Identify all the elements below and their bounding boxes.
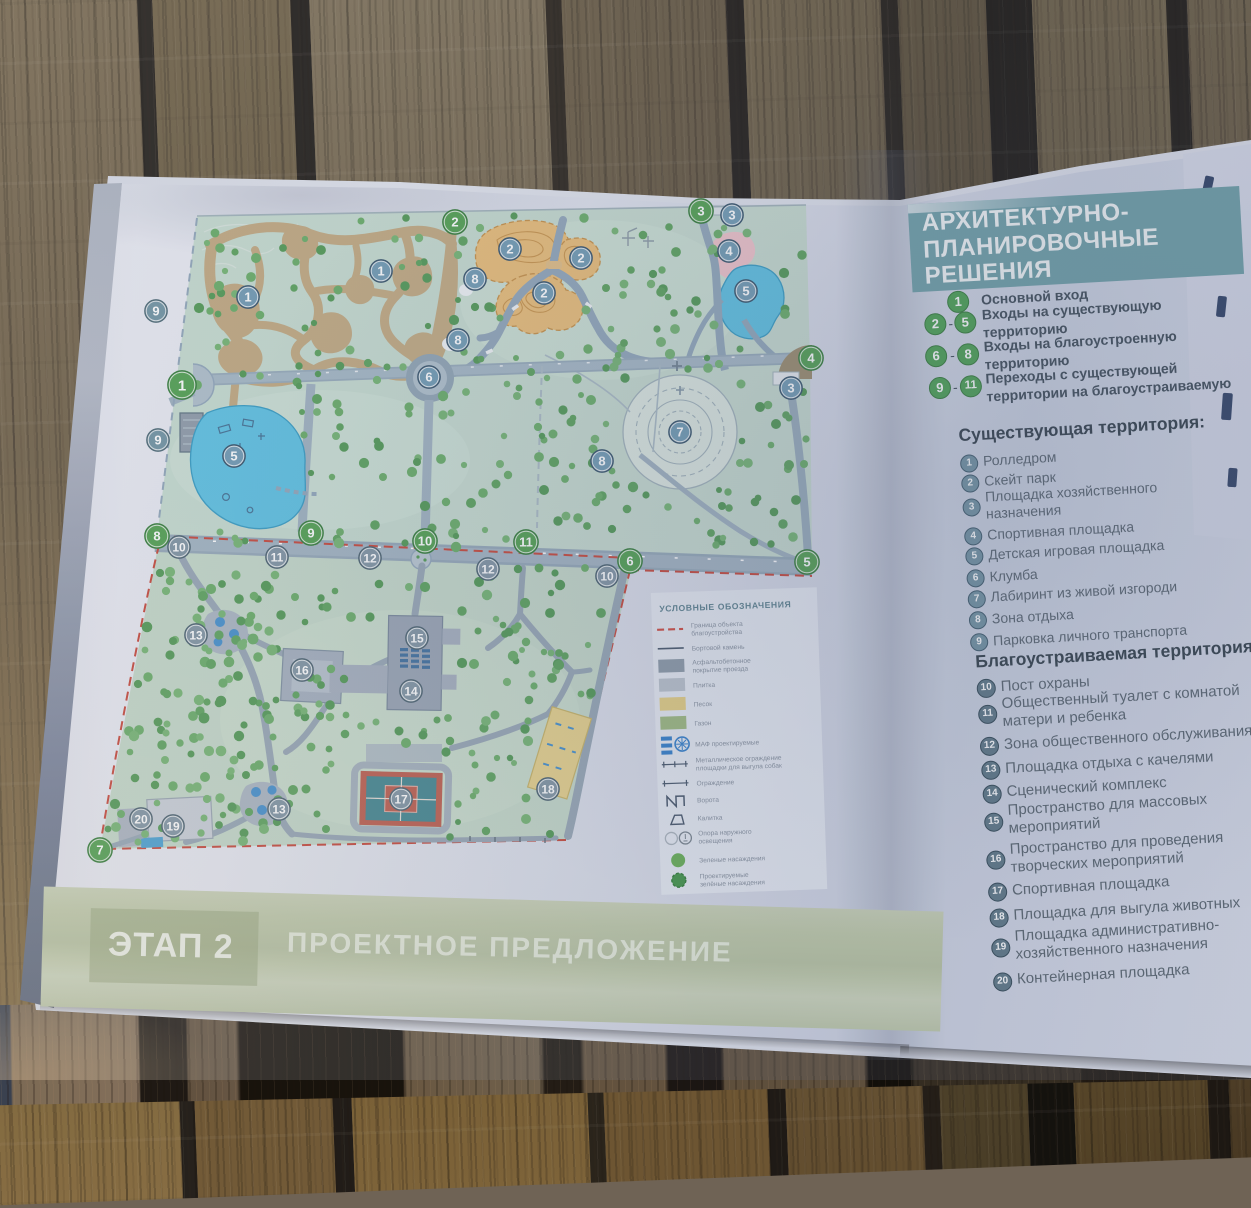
svg-text:Калитка: Калитка xyxy=(698,815,723,823)
svg-text:16: 16 xyxy=(295,663,309,677)
svg-text:3: 3 xyxy=(697,204,704,219)
svg-text:2: 2 xyxy=(506,242,513,257)
svg-text:12: 12 xyxy=(363,551,377,565)
svg-text:7: 7 xyxy=(96,843,103,858)
svg-text:Ограждение: Ограждение xyxy=(696,779,734,787)
svg-text:Газон: Газон xyxy=(694,720,712,728)
svg-text:17: 17 xyxy=(394,792,408,806)
svg-text:1: 1 xyxy=(377,264,384,279)
svg-text:10: 10 xyxy=(418,534,432,549)
svg-text:7: 7 xyxy=(676,425,683,440)
svg-text:Ворота: Ворота xyxy=(697,797,719,805)
svg-text:13: 13 xyxy=(189,628,203,642)
svg-text:2: 2 xyxy=(577,251,584,266)
svg-text:8: 8 xyxy=(454,333,461,348)
svg-text:8: 8 xyxy=(153,529,160,544)
svg-text:20: 20 xyxy=(134,812,148,826)
svg-text:6: 6 xyxy=(425,370,432,385)
svg-text:10: 10 xyxy=(600,569,614,583)
svg-text:5: 5 xyxy=(803,555,810,570)
svg-text:18: 18 xyxy=(541,782,555,796)
svg-text:10: 10 xyxy=(172,540,186,554)
svg-text:11: 11 xyxy=(271,550,284,564)
svg-text:2: 2 xyxy=(451,215,458,230)
svg-text:3: 3 xyxy=(787,381,794,396)
svg-text:5: 5 xyxy=(742,284,749,299)
svg-text:12: 12 xyxy=(481,562,495,576)
svg-text:2: 2 xyxy=(540,286,547,301)
svg-text:9: 9 xyxy=(152,304,159,319)
svg-text:1: 1 xyxy=(244,290,251,305)
svg-text:1: 1 xyxy=(178,377,186,394)
svg-text:Песок: Песок xyxy=(694,701,713,709)
svg-text:8: 8 xyxy=(471,272,478,287)
svg-text:5: 5 xyxy=(230,449,237,464)
svg-text:8: 8 xyxy=(598,454,605,469)
svg-text:4: 4 xyxy=(807,351,815,366)
svg-text:9: 9 xyxy=(307,526,314,541)
svg-text:3: 3 xyxy=(728,208,735,223)
svg-text:13: 13 xyxy=(272,802,286,816)
svg-text:19: 19 xyxy=(166,819,180,833)
svg-text:Плитка: Плитка xyxy=(693,682,716,690)
svg-text:15: 15 xyxy=(410,631,424,645)
svg-text:4: 4 xyxy=(725,244,733,259)
svg-text:14: 14 xyxy=(404,684,418,698)
svg-text:11: 11 xyxy=(519,535,533,550)
svg-text:освещения: освещения xyxy=(698,837,733,845)
svg-text:6: 6 xyxy=(626,554,633,569)
svg-text:9: 9 xyxy=(154,433,161,448)
